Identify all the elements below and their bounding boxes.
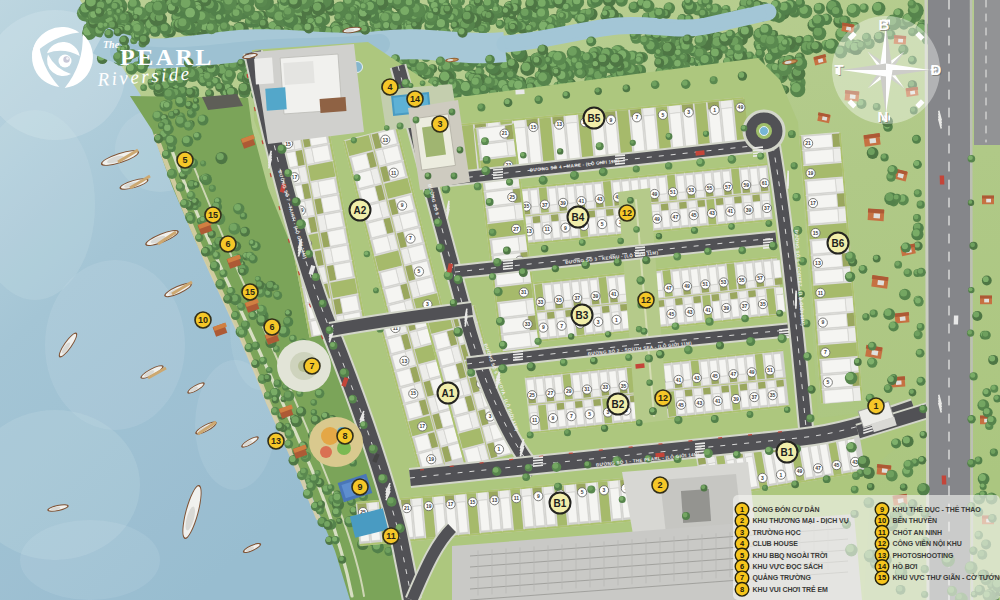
svg-text:KHU THỂ DỤC - THỂ THAO: KHU THỂ DỤC - THỂ THAO [893,505,982,513]
svg-text:10: 10 [878,516,886,525]
svg-text:6: 6 [740,562,744,571]
svg-text:The: The [103,39,120,50]
svg-text:CÔNG VIÊN NỘI KHU: CÔNG VIÊN NỘI KHU [893,539,962,547]
svg-text:8: 8 [740,585,744,594]
svg-text:13: 13 [878,551,886,560]
svg-text:KHU VỰC ĐỌC SÁCH: KHU VỰC ĐỌC SÁCH [753,562,823,570]
svg-text:5: 5 [740,551,744,560]
svg-text:9: 9 [880,505,884,514]
svg-text:KHU VỰC THƯ GIÃN - CỜ TƯỚNG: KHU VỰC THƯ GIÃN - CỜ TƯỚNG [893,573,1000,581]
svg-text:CHỐT AN NINH: CHỐT AN NINH [893,527,943,536]
svg-text:KHU BBQ NGOÀI TRỜI: KHU BBQ NGOÀI TRỜI [753,551,828,560]
svg-text:QUẢNG TRƯỜNG: QUẢNG TRƯỜNG [753,573,812,582]
svg-text:KHU VUI CHƠI TRẺ EM: KHU VUI CHƠI TRẺ EM [753,585,829,593]
svg-text:TRƯỜNG HỌC: TRƯỜNG HỌC [753,528,801,536]
svg-text:CLUB HOUSE: CLUB HOUSE [753,540,799,547]
svg-text:HỒ BƠI: HỒ BƠI [893,561,918,570]
svg-text:15: 15 [878,573,886,582]
svg-text:KHU THƯƠNG MẠI - DỊCH VỤ: KHU THƯƠNG MẠI - DỊCH VỤ [753,517,849,524]
svg-text:2: 2 [740,516,744,525]
svg-text:11: 11 [878,528,886,537]
svg-text:14: 14 [878,562,887,571]
svg-text:CỔNG ĐÓN CƯ DÂN: CỔNG ĐÓN CƯ DÂN [753,505,820,513]
svg-text:BẾN THUYỀN: BẾN THUYỀN [893,515,938,524]
svg-text:1: 1 [740,505,744,514]
svg-text:3: 3 [740,528,744,537]
svg-text:7: 7 [740,573,744,582]
svg-text:12: 12 [878,539,886,548]
svg-text:PHOTOSHOOTING: PHOTOSHOOTING [893,552,954,559]
